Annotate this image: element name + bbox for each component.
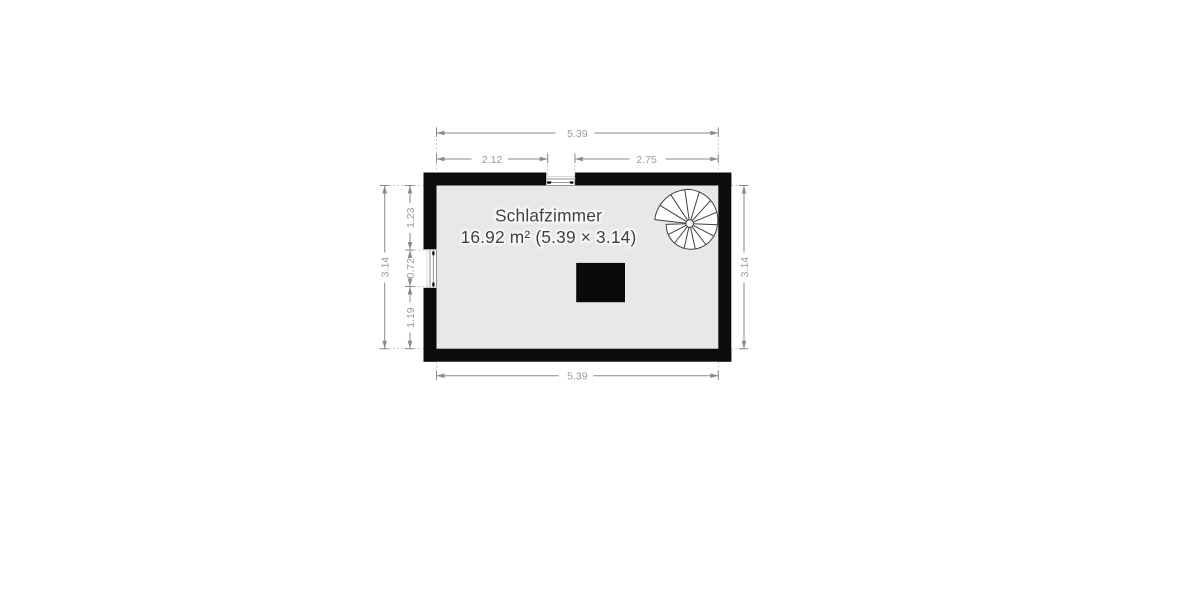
svg-text:0.72: 0.72	[405, 258, 417, 279]
svg-text:2.75: 2.75	[636, 154, 657, 166]
svg-text:1.23: 1.23	[405, 207, 417, 228]
svg-text:Schlafzimmer: Schlafzimmer	[495, 205, 602, 225]
svg-text:3.14: 3.14	[380, 257, 392, 278]
svg-text:2.12: 2.12	[482, 154, 503, 166]
svg-text:3.14: 3.14	[739, 257, 751, 278]
svg-text:5.39: 5.39	[567, 128, 588, 140]
svg-text:1.19: 1.19	[405, 307, 417, 328]
svg-text:16.92 m² (5.39 × 3.14): 16.92 m² (5.39 × 3.14)	[461, 227, 637, 247]
svg-text:5.39: 5.39	[567, 371, 588, 383]
